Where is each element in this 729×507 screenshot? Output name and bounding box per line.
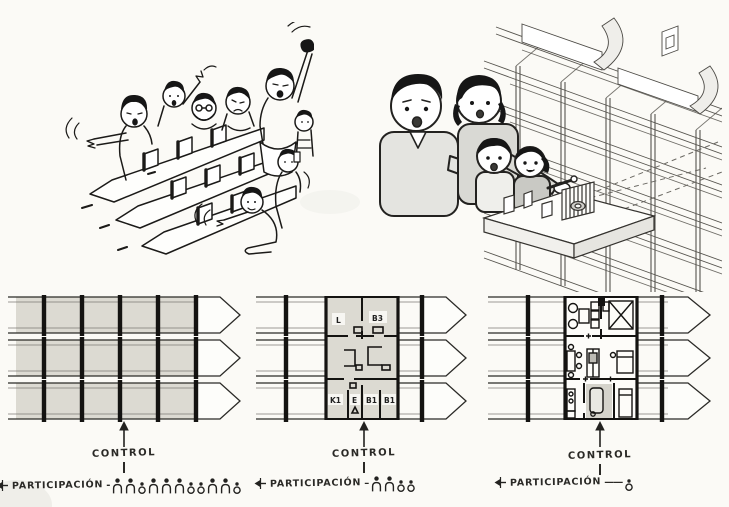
- person-icon-adult: [384, 476, 395, 492]
- person-icon-adult: [161, 478, 172, 494]
- family-group: [380, 74, 577, 216]
- person-icon-adult: [148, 478, 159, 494]
- control-tick: [363, 462, 365, 473]
- participants-icons: [371, 476, 415, 493]
- participation-separator: –: [364, 475, 368, 493]
- participation-arrow-glyph: [254, 477, 267, 490]
- participation-row: PARTICIPACIÓN -: [0, 475, 241, 495]
- scan-smudge: [300, 190, 360, 214]
- bearded-man-figure: [192, 93, 216, 129]
- room-label-bed3: B3: [372, 314, 383, 323]
- participation-row: PARTICIPACIÓN ——: [494, 472, 633, 492]
- participation-label: PARTICIPACIÓN: [510, 473, 602, 493]
- control-arrow-up: [116, 421, 132, 447]
- person-icon-child: [625, 479, 633, 491]
- person-icon-adult: [112, 478, 123, 494]
- control-label: CONTROL: [555, 449, 645, 462]
- plan-support-rooms: L B3 K1 E B1 B1: [256, 295, 474, 423]
- control-arrow-up: [592, 421, 608, 447]
- participation-row: PARTICIPACIÓN –: [254, 473, 415, 493]
- room-label-living: L: [336, 316, 341, 325]
- person-icon-adult: [220, 478, 231, 494]
- person-icon-child: [197, 482, 205, 494]
- participation-arrow-glyph: [494, 476, 507, 489]
- room-label-entry: E: [352, 396, 357, 405]
- participants-icons: [112, 478, 241, 495]
- plan-support-empty: [6, 295, 252, 423]
- plan-support-furnished: [488, 295, 716, 423]
- crowd-arguing-illustration: [52, 22, 314, 260]
- room-label-bed1a: B1: [366, 396, 377, 405]
- room-label-kitchen: K1: [330, 396, 341, 405]
- bathroom: [586, 384, 612, 418]
- control-label: CONTROL: [319, 447, 409, 460]
- person-icon-adult: [207, 478, 218, 494]
- person-icon-adult: [371, 476, 382, 492]
- control-tick: [123, 462, 125, 473]
- participation-separator: ——: [604, 474, 622, 492]
- participation-label: PARTICIPACIÓN: [270, 474, 362, 494]
- furnished-dwelling-plan: [565, 296, 637, 420]
- frowning-man-figure: [222, 87, 254, 131]
- family-with-model-illustration: [366, 6, 722, 292]
- person-icon-child: [187, 482, 195, 494]
- person-icon-child: [407, 480, 415, 492]
- participation-separator: -: [106, 477, 109, 495]
- participation-label: PARTICIPACIÓN: [12, 476, 104, 496]
- person-icon-child: [233, 482, 241, 494]
- scanned-page: L B3 K1 E B1 B1: [0, 0, 729, 507]
- room-label-bed1b: B1: [384, 396, 395, 405]
- person-icon-child: [397, 480, 405, 492]
- person-icon-adult: [125, 478, 136, 494]
- person-icon-adult: [174, 478, 185, 494]
- dwelling-unit-plan: L B3 K1 E B1 B1: [326, 296, 398, 420]
- person-icon-child: [138, 482, 146, 494]
- participation-arrow-glyph: [0, 479, 9, 492]
- participants-icons: [625, 479, 633, 492]
- pointing-man-figure: [66, 95, 152, 180]
- control-label: CONTROL: [79, 447, 169, 460]
- support-strips: [8, 295, 240, 422]
- control-arrow-up: [356, 421, 372, 447]
